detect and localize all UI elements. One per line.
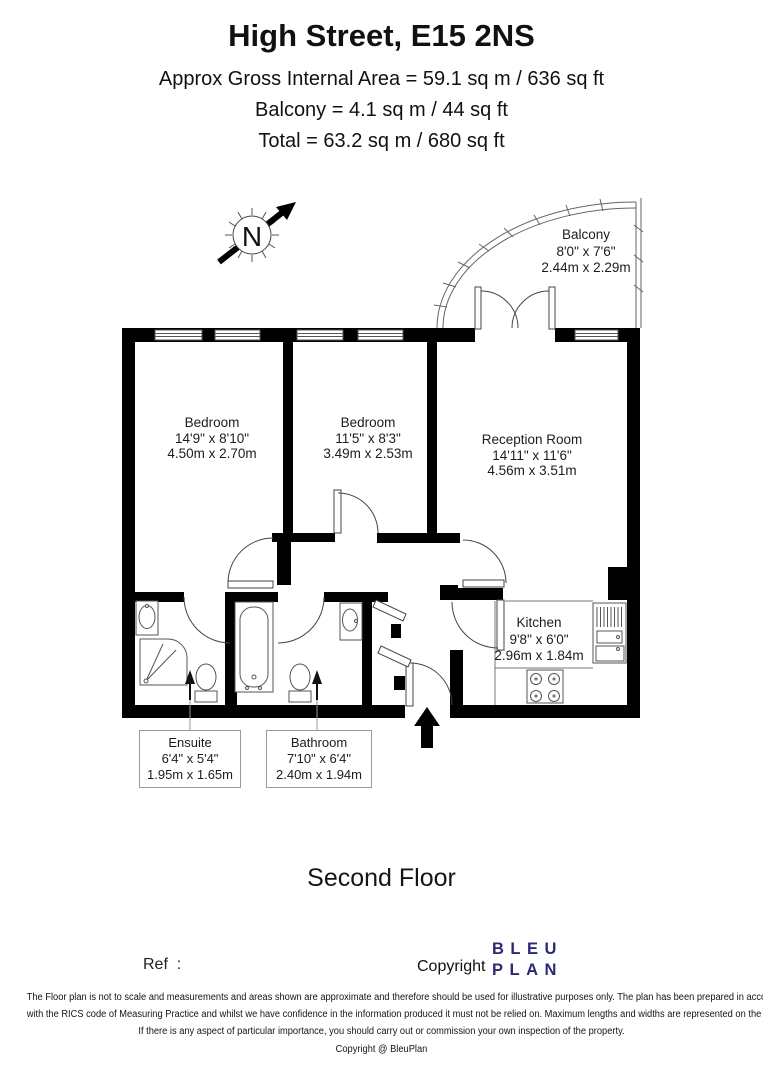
label-reception-room: Reception Room 14'11" x 11'6" 4.56m x 3.… (482, 432, 583, 479)
room-name: Bedroom (323, 415, 412, 431)
room-size-metric: 3.49m x 2.53m (323, 446, 412, 462)
window-bedroom2-a (297, 330, 343, 340)
door-bathroom (278, 597, 324, 643)
total-area-line: Total = 63.2 sq m / 680 sq ft (0, 126, 763, 157)
bathroom-basin (340, 603, 362, 640)
wall-exterior-left (122, 328, 135, 718)
bleuplan-logo: BLEU PLAN (492, 939, 563, 981)
ensuite-basin (136, 601, 158, 635)
room-size-imperial: 8'0" x 7'6" (541, 244, 630, 261)
ensuite-toilet (195, 664, 217, 702)
logo-line-2: PLAN (492, 960, 563, 981)
bathroom-bathtub (235, 602, 273, 692)
room-name: Ensuite (144, 735, 236, 751)
floorplan-drawing: N (0, 0, 763, 1080)
room-name: Balcony (541, 227, 630, 244)
door-entrance (406, 663, 452, 706)
wall-hall-stub-2 (394, 676, 405, 690)
window-bedroom2-b (358, 330, 403, 340)
disclaimer-line-4: Copyright @ BleuPlan (27, 1041, 737, 1058)
label-bedroom-2: Bedroom 11'5" x 8'3" 3.49m x 2.53m (323, 415, 412, 462)
room-size-metric: 4.50m x 2.70m (167, 446, 256, 462)
page-title: High Street, E15 2NS (0, 18, 763, 54)
door-balcony-right (512, 287, 555, 329)
room-name: Bathroom (271, 735, 367, 751)
window-bedroom1-b (215, 330, 260, 340)
door-ensuite (184, 597, 230, 643)
wall-bedroom2-reception (427, 342, 437, 543)
label-kitchen: Kitchen 9'8" x 6'0" 2.96m x 1.84m (494, 615, 583, 665)
wall-bedroom1-bedroom2 (283, 342, 293, 533)
windows-layer (155, 330, 618, 340)
room-size-metric: 4.56m x 3.51m (482, 463, 583, 479)
wall-kitchen-left (450, 650, 463, 705)
wall-bedroom1-hall (277, 533, 291, 585)
callout-ensuite: Ensuite 6'4" x 5'4" 1.95m x 1.65m (139, 730, 241, 788)
room-size-imperial: 14'11" x 11'6" (482, 448, 583, 464)
bathroom-leader-arrow-icon (312, 670, 322, 684)
room-size-imperial: 7'10" x 6'4" (271, 751, 367, 767)
wall-hall-stub-1 (391, 624, 401, 638)
header: High Street, E15 2NS Approx Gross Intern… (0, 18, 763, 157)
wall-bathroom-hall (362, 592, 372, 710)
disclaimer-line-3: If there is any aspect of particular imp… (27, 1023, 737, 1040)
wall-bathroom-top-left (237, 592, 278, 602)
room-size-imperial: 9'8" x 6'0" (494, 632, 583, 649)
room-size-imperial: 11'5" x 8'3" (323, 431, 412, 447)
door-reception (463, 540, 506, 587)
door-balcony-left (475, 287, 518, 329)
wall-reception-stub (440, 585, 458, 600)
room-size-imperial: 14'9" x 8'10" (167, 431, 256, 447)
ref-label: Ref : (143, 956, 181, 974)
compass-north-label: N (242, 221, 262, 252)
wall-right-bump (608, 567, 627, 600)
entrance-arrow-icon (414, 707, 440, 748)
floorplan-page: N High Street, E15 2NS Approx Gross Inte… (0, 0, 763, 1080)
kitchen-sink (593, 603, 626, 663)
room-size-metric: 2.96m x 1.84m (494, 648, 583, 665)
wall-hall-top-right (377, 533, 460, 543)
room-size-metric: 2.44m x 2.29m (541, 260, 630, 277)
kitchen-hob (527, 670, 563, 703)
window-bedroom1-a (155, 330, 202, 340)
label-balcony: Balcony 8'0" x 7'6" 2.44m x 2.29m (541, 227, 630, 277)
wall-kitchen-top (458, 588, 503, 600)
floor-label: Second Floor (0, 864, 763, 893)
wall-exterior-bottom-right (450, 705, 640, 718)
wall-bathroom-top-right (324, 592, 388, 602)
disclaimer-line-1: The Floor plan is not to scale and measu… (27, 989, 737, 1006)
room-name: Reception Room (482, 432, 583, 448)
balcony-area-line: Balcony = 4.1 sq m / 44 sq ft (0, 95, 763, 126)
label-bedroom-1: Bedroom 14'9" x 8'10" 4.50m x 2.70m (167, 415, 256, 462)
disclaimer: The Floor plan is not to scale and measu… (0, 989, 763, 1058)
window-reception (575, 330, 618, 340)
copyright-label: Copyright (417, 958, 485, 976)
room-size-metric: 2.40m x 1.94m (271, 767, 367, 783)
room-size-metric: 1.95m x 1.65m (144, 767, 236, 783)
room-name: Kitchen (494, 615, 583, 632)
room-name: Bedroom (167, 415, 256, 431)
ensuite-shower (140, 639, 187, 685)
bathroom-toilet (289, 664, 311, 702)
door-bedroom1 (228, 538, 273, 588)
room-size-imperial: 6'4" x 5'4" (144, 751, 236, 767)
gross-internal-area-line: Approx Gross Internal Area = 59.1 sq m /… (0, 64, 763, 95)
compass-icon: N (219, 202, 296, 262)
door-bedroom2 (334, 490, 378, 533)
callout-bathroom: Bathroom 7'10" x 6'4" 2.40m x 1.94m (266, 730, 372, 788)
logo-line-1: BLEU (492, 939, 563, 960)
disclaimer-line-2: with the RICS code of Measuring Practice… (27, 1006, 737, 1023)
wall-exterior-right (627, 328, 640, 718)
